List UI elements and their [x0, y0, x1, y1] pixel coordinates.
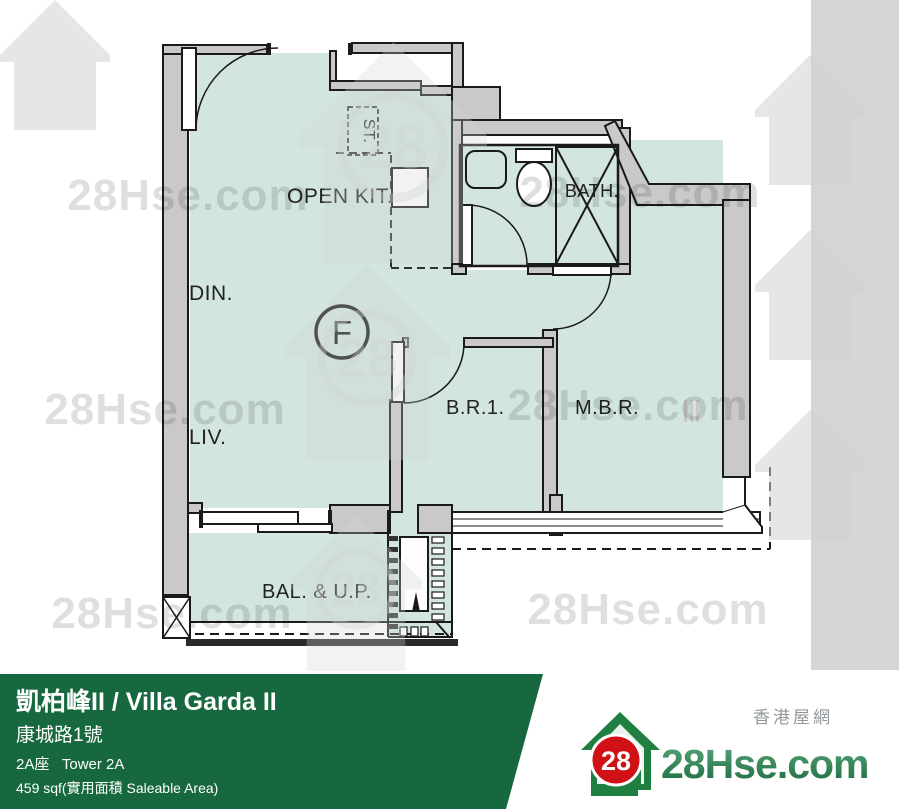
room-label-bedroom1: B.R.1. [446, 397, 505, 419]
logo-site-text: 28Hse.com [661, 741, 869, 787]
screenshot-stage: F OPEN KIT. ST. BATH. DIN. LIV. B.R.1. M… [0, 0, 899, 809]
tower-label: 2A座 Tower 2A [16, 753, 124, 774]
estate-title: 凱柏峰II / Villa Garda II [16, 682, 277, 718]
svg-text:28: 28 [601, 746, 631, 776]
floor-plan: F OPEN KIT. ST. BATH. DIN. LIV. B.R.1. M… [0, 0, 899, 672]
bath-door-leaf [462, 205, 472, 265]
window-band [452, 512, 760, 533]
logo-28hse: 28 28Hse.com [578, 708, 878, 808]
watermark-house-icon [0, 0, 110, 130]
watermark-text: 28Hse.com [519, 168, 760, 217]
entrance-door-leaf [182, 48, 196, 130]
toilet-tank-icon [516, 149, 552, 162]
estate-address: 康城路1號 [16, 720, 103, 747]
mbr-door-leaf [553, 266, 611, 275]
watermark-text: 28Hse.com [51, 589, 292, 638]
svg-text:28: 28 [359, 113, 428, 182]
watermark-text: 28Hse.com [44, 385, 285, 434]
watermark-text: 28Hse.com [67, 171, 308, 220]
area-label: 459 sqf(實用面積 Saleable Area) [16, 778, 218, 798]
bay-window [723, 477, 762, 533]
svg-text:28: 28 [331, 564, 381, 615]
watermark-text: 28Hse.com [507, 381, 748, 430]
room-label-dining: DIN. [189, 282, 233, 305]
logo-28-badge: 28 [591, 735, 641, 785]
svg-text:28: 28 [336, 327, 397, 389]
watermark-text: 28Hse.com [527, 585, 768, 634]
